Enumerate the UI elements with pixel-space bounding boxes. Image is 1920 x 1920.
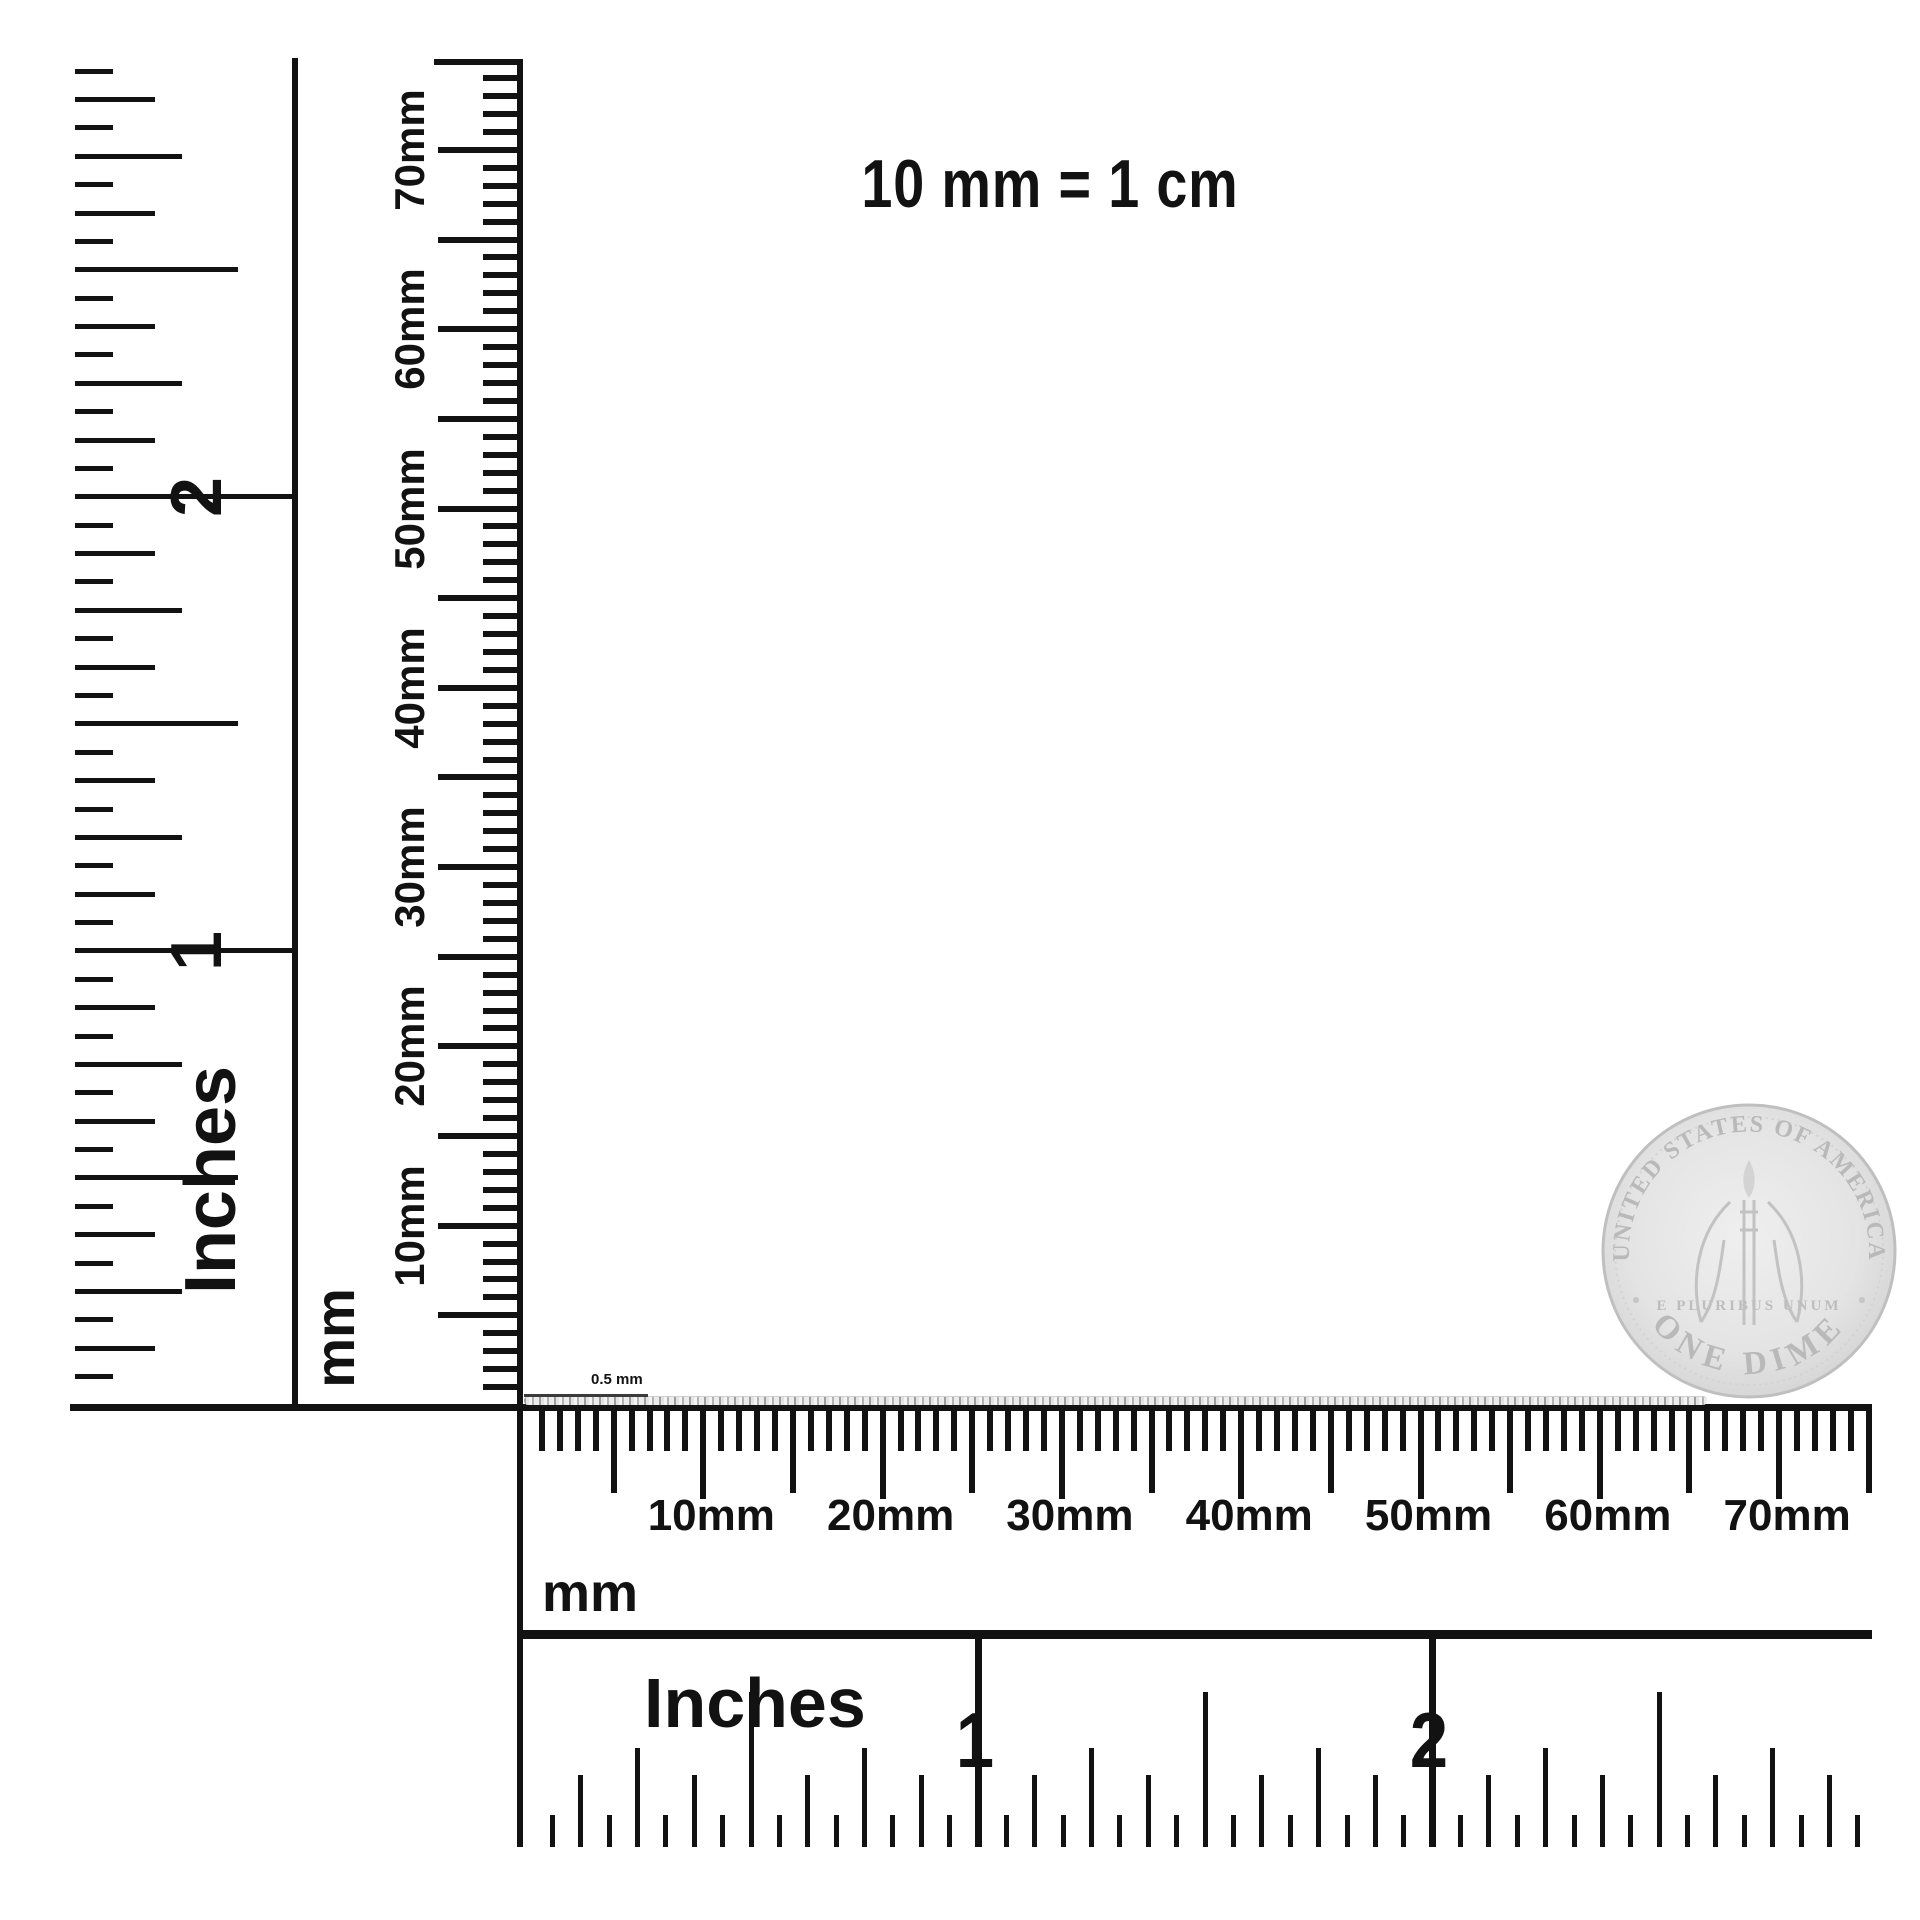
mm-tick [611, 1411, 617, 1493]
mm-tick [483, 75, 523, 81]
mm-tick [1848, 1411, 1854, 1451]
inch-tick [607, 1815, 612, 1847]
mm-tick [1328, 1411, 1334, 1493]
inch-tick [75, 835, 182, 840]
mm-tick [483, 1025, 523, 1031]
mm-tick [629, 1411, 635, 1451]
inch-tick [1657, 1692, 1662, 1847]
mm-tick [483, 290, 523, 296]
mm-tick [438, 774, 523, 780]
mm-tick [483, 254, 523, 260]
mm-tick [1471, 1411, 1477, 1451]
mm-tick [483, 846, 523, 852]
mm-tick [483, 1061, 523, 1067]
mm-tick [664, 1411, 670, 1451]
mm-tick [483, 219, 523, 225]
mm-tick [483, 434, 523, 440]
inch-tick [75, 211, 155, 216]
inch-tick [75, 579, 113, 584]
inch-tick [75, 892, 155, 897]
mm-tick [1005, 1411, 1011, 1451]
inch-tick [635, 1748, 640, 1847]
mm-tick [483, 1259, 523, 1265]
mm-tick [969, 1411, 975, 1493]
inch-tick [75, 381, 182, 386]
mm-tick [483, 810, 523, 816]
inch-tick [777, 1815, 782, 1847]
inch-tick [75, 1062, 182, 1067]
mm-tick [483, 452, 523, 458]
mm-number-label: 50mm [1365, 1494, 1492, 1538]
inch-tick [947, 1815, 952, 1847]
mm-tick [1184, 1411, 1190, 1451]
mm-tick [1364, 1411, 1370, 1451]
inch-tick [1259, 1775, 1264, 1847]
mm-tick [1830, 1411, 1836, 1451]
inch-tick [75, 267, 238, 272]
mm-tick [1435, 1411, 1441, 1451]
inch-tick [75, 1034, 113, 1039]
bottom-inches-axis-label: Inches [644, 1668, 866, 1738]
inch-tick [75, 438, 155, 443]
mm-tick [1095, 1411, 1101, 1451]
mm-tick [1704, 1411, 1710, 1451]
inch-tick [75, 721, 238, 726]
inch-tick [663, 1815, 668, 1847]
inch-number-label: 2 [1410, 1701, 1448, 1779]
inch-tick [75, 466, 113, 471]
mm-tick [483, 577, 523, 583]
mm-tick [438, 954, 523, 960]
inch-tick [75, 1346, 155, 1351]
mm-tick [483, 649, 523, 655]
mm-tick [483, 757, 523, 763]
inch-tick [834, 1815, 839, 1847]
mm-tick [1400, 1411, 1406, 1451]
mm-tick [483, 362, 523, 368]
left-mm-ruler-top-cap [434, 59, 523, 65]
mm-tick [483, 900, 523, 906]
mm-number-label: 40mm [1186, 1494, 1313, 1538]
inch-tick [1373, 1775, 1378, 1847]
inch-tick [75, 1147, 113, 1152]
inch-tick [75, 750, 113, 755]
mm-tick [862, 1411, 868, 1451]
mm-tick [483, 972, 523, 978]
mm-number-label: 60mm [1544, 1494, 1671, 1538]
mm-tick [880, 1411, 886, 1499]
mm-number-label: 70mm [1724, 1494, 1851, 1538]
mm-tick [736, 1411, 742, 1451]
inch-tick [75, 1374, 113, 1379]
inch-tick [692, 1775, 697, 1847]
mm-tick [483, 183, 523, 189]
inch-number-label: 1 [956, 1701, 994, 1779]
inch-tick [75, 551, 155, 556]
mm-tick [438, 147, 523, 153]
mm-tick [826, 1411, 832, 1451]
inch-tick [1231, 1815, 1236, 1847]
mm-tick [1041, 1411, 1047, 1451]
rope-chain [524, 1396, 1707, 1405]
bottom-inches-ruler-spine [517, 1630, 1872, 1639]
inch-tick [75, 1090, 113, 1095]
inch-tick [578, 1775, 583, 1847]
mm-tick [1292, 1411, 1298, 1451]
mm-tick [438, 685, 523, 691]
mm-tick [1686, 1411, 1692, 1493]
mm-tick [483, 488, 523, 494]
inch-tick [75, 1204, 113, 1209]
inch-tick [75, 1119, 155, 1124]
mm-tick [483, 1276, 523, 1282]
mm-tick [483, 398, 523, 404]
mm-number-label: 60mm [389, 268, 431, 389]
inch-tick [1174, 1815, 1179, 1847]
mm-tick [1256, 1411, 1262, 1451]
mm-tick [1525, 1411, 1531, 1451]
conversion-note: 10 mm = 1 cm [861, 150, 1238, 218]
inch-tick [862, 1748, 867, 1847]
left-inches-axis-label: Inches [175, 1066, 247, 1294]
mm-tick [1615, 1411, 1621, 1451]
mm-tick [483, 918, 523, 924]
inch-tick [1401, 1815, 1406, 1847]
inch-tick [1685, 1815, 1690, 1847]
mm-tick [593, 1411, 599, 1451]
mm-tick [1812, 1411, 1818, 1451]
inch-number-label: 2 [161, 477, 233, 517]
mm-tick [438, 506, 523, 512]
mm-tick [483, 1079, 523, 1085]
mm-tick [438, 237, 523, 243]
mm-tick [1077, 1411, 1083, 1451]
mm-tick [483, 703, 523, 709]
mm-number-label: 30mm [1006, 1494, 1133, 1538]
inch-tick [1345, 1815, 1350, 1847]
mm-tick [438, 1043, 523, 1049]
mm-tick [483, 1241, 523, 1247]
bottom-mm-axis-label: mm [542, 1566, 638, 1620]
chain-pointer-line [524, 1394, 648, 1397]
mm-tick [1382, 1411, 1388, 1451]
inch-tick [1799, 1815, 1804, 1847]
mm-tick [438, 864, 523, 870]
inch-tick [550, 1815, 555, 1847]
mm-tick [647, 1411, 653, 1451]
inch-tick [1543, 1748, 1548, 1847]
inch-tick [75, 352, 113, 357]
mm-tick [483, 721, 523, 727]
mm-tick [1597, 1411, 1603, 1499]
mm-tick [933, 1411, 939, 1451]
inch-tick [890, 1815, 895, 1847]
mm-tick [438, 1133, 523, 1139]
mm-tick [754, 1411, 760, 1451]
inch-tick [75, 693, 113, 698]
inch-tick [1146, 1775, 1151, 1847]
mm-tick [1561, 1411, 1567, 1451]
inch-tick [75, 409, 113, 414]
mm-tick [1149, 1411, 1155, 1493]
mm-tick [483, 1330, 523, 1336]
mm-tick [483, 1008, 523, 1014]
inch-tick [75, 977, 113, 982]
mm-tick [483, 201, 523, 207]
mm-tick [718, 1411, 724, 1451]
inch-number-label: 1 [161, 931, 233, 971]
inch-tick [75, 665, 155, 670]
inch-tick [1713, 1775, 1718, 1847]
inch-tick [75, 69, 113, 74]
mm-tick [483, 93, 523, 99]
mm-tick [1866, 1411, 1872, 1493]
mm-tick [483, 792, 523, 798]
mm-tick [483, 667, 523, 673]
inch-tick [75, 1261, 113, 1266]
mm-tick [1274, 1411, 1280, 1451]
mm-tick [539, 1411, 545, 1451]
mm-tick [898, 1411, 904, 1451]
mm-tick [915, 1411, 921, 1451]
inch-tick [1827, 1775, 1832, 1847]
inch-tick [75, 1317, 113, 1322]
mm-tick [790, 1411, 796, 1493]
mm-tick [1346, 1411, 1352, 1451]
inch-tick [75, 182, 113, 187]
inch-tick [1515, 1815, 1520, 1847]
inch-tick [75, 1005, 155, 1010]
coin-motto: E PLURIBUS UNUM [1656, 1298, 1841, 1314]
chain-size-label: 0.5 mm [591, 1372, 643, 1387]
mm-tick [483, 828, 523, 834]
inch-tick [75, 778, 155, 783]
mm-tick [1059, 1411, 1065, 1499]
mm-tick [483, 1151, 523, 1157]
inch-tick [75, 636, 113, 641]
mm-tick [483, 1169, 523, 1175]
inch-tick [1600, 1775, 1605, 1847]
mm-tick [483, 739, 523, 745]
inch-tick [75, 523, 113, 528]
mm-tick [1669, 1411, 1675, 1451]
mm-tick [483, 1366, 523, 1372]
mm-tick [700, 1411, 706, 1499]
inch-tick [1089, 1748, 1094, 1847]
mm-tick [483, 165, 523, 171]
inch-tick [1032, 1775, 1037, 1847]
mm-tick [483, 308, 523, 314]
inch-tick [75, 239, 113, 244]
inch-tick [1061, 1815, 1066, 1847]
mm-tick [1131, 1411, 1137, 1451]
left-mm-axis-label: mm [307, 1288, 363, 1388]
mm-tick [1202, 1411, 1208, 1451]
inch-tick [75, 863, 113, 868]
mm-tick [1579, 1411, 1585, 1451]
mm-tick [1722, 1411, 1728, 1451]
mm-tick [1633, 1411, 1639, 1451]
product-measurement-image: 10 mm = 1 cm 12 10mm20mm30mm40mm50mm60mm… [0, 0, 1920, 1920]
inch-tick [75, 154, 182, 159]
mm-number-label: 40mm [389, 627, 431, 748]
mm-tick [1758, 1411, 1764, 1451]
mm-tick [483, 1115, 523, 1121]
mm-tick [1023, 1411, 1029, 1451]
mm-tick [483, 272, 523, 278]
mm-tick [483, 111, 523, 117]
mm-tick [483, 631, 523, 637]
inch-tick [75, 324, 155, 329]
inch-tick [75, 1232, 155, 1237]
mm-tick [483, 1205, 523, 1211]
mm-tick [483, 559, 523, 565]
mm-number-label: 10mm [648, 1494, 775, 1538]
mm-number-label: 30mm [389, 806, 431, 927]
inch-tick [75, 920, 113, 925]
inch-tick [1855, 1815, 1860, 1847]
mm-tick [1794, 1411, 1800, 1451]
mm-tick [951, 1411, 957, 1451]
inch-tick [919, 1775, 924, 1847]
mm-number-label: 50mm [389, 448, 431, 569]
inch-tick [1628, 1815, 1633, 1847]
mm-tick [483, 380, 523, 386]
mm-tick [483, 129, 523, 135]
mm-tick [483, 523, 523, 529]
mm-tick [483, 344, 523, 350]
mm-tick [844, 1411, 850, 1451]
inch-tick [75, 1289, 182, 1294]
mm-tick [987, 1411, 993, 1451]
inch-tick [1117, 1815, 1122, 1847]
inch-tick [805, 1775, 810, 1847]
mm-tick [1113, 1411, 1119, 1451]
mm-tick [1507, 1411, 1513, 1493]
mm-tick [1453, 1411, 1459, 1451]
inch-tick [1486, 1775, 1491, 1847]
mm-number-label: 10mm [389, 1165, 431, 1286]
inch-tick [1572, 1815, 1577, 1847]
mm-tick [483, 541, 523, 547]
mm-tick [1418, 1411, 1424, 1499]
mm-tick [1651, 1411, 1657, 1451]
inch-tick [75, 807, 113, 812]
mm-tick [483, 1187, 523, 1193]
mm-tick [1166, 1411, 1172, 1451]
mm-number-label: 20mm [389, 986, 431, 1107]
mm-tick [1740, 1411, 1746, 1451]
mm-number-label: 70mm [389, 89, 431, 210]
mm-tick [772, 1411, 778, 1451]
mm-tick [483, 1097, 523, 1103]
mm-tick [1310, 1411, 1316, 1451]
inch-tick [1203, 1692, 1208, 1847]
mm-tick [438, 595, 523, 601]
inch-tick [1458, 1815, 1463, 1847]
mm-tick [1220, 1411, 1226, 1451]
inch-tick [75, 608, 182, 613]
mm-tick [438, 326, 523, 332]
mm-tick [438, 416, 523, 422]
mm-tick [1489, 1411, 1495, 1451]
mm-tick [483, 882, 523, 888]
inch-tick [75, 125, 113, 130]
mm-tick [483, 1348, 523, 1354]
mm-tick [483, 470, 523, 476]
mm-tick [483, 1294, 523, 1300]
mm-tick [575, 1411, 581, 1451]
inch-tick [75, 97, 155, 102]
left-inches-ruler-spine [292, 58, 298, 1410]
mm-tick [682, 1411, 688, 1451]
dime-coin: UNITED STATES OF AMERICA ONE DIME E PLUR… [1598, 1100, 1900, 1402]
inch-tick [1770, 1748, 1775, 1847]
mm-number-label: 20mm [827, 1494, 954, 1538]
mm-tick [1238, 1411, 1244, 1499]
inch-tick [720, 1815, 725, 1847]
mm-tick [557, 1411, 563, 1451]
mm-tick [438, 1223, 523, 1229]
inch-tick [1316, 1748, 1321, 1847]
mm-tick [483, 936, 523, 942]
inch-tick [75, 296, 113, 301]
mm-tick [483, 613, 523, 619]
inch-tick [1004, 1815, 1009, 1847]
inch-tick [1742, 1815, 1747, 1847]
mm-tick [1776, 1411, 1782, 1499]
mm-tick [438, 1312, 523, 1318]
bottom-mm-ruler-spine [70, 1404, 1872, 1411]
mm-tick [1543, 1411, 1549, 1451]
mm-tick [808, 1411, 814, 1451]
mm-tick [483, 1384, 523, 1390]
mm-tick [483, 990, 523, 996]
inch-tick [1288, 1815, 1293, 1847]
